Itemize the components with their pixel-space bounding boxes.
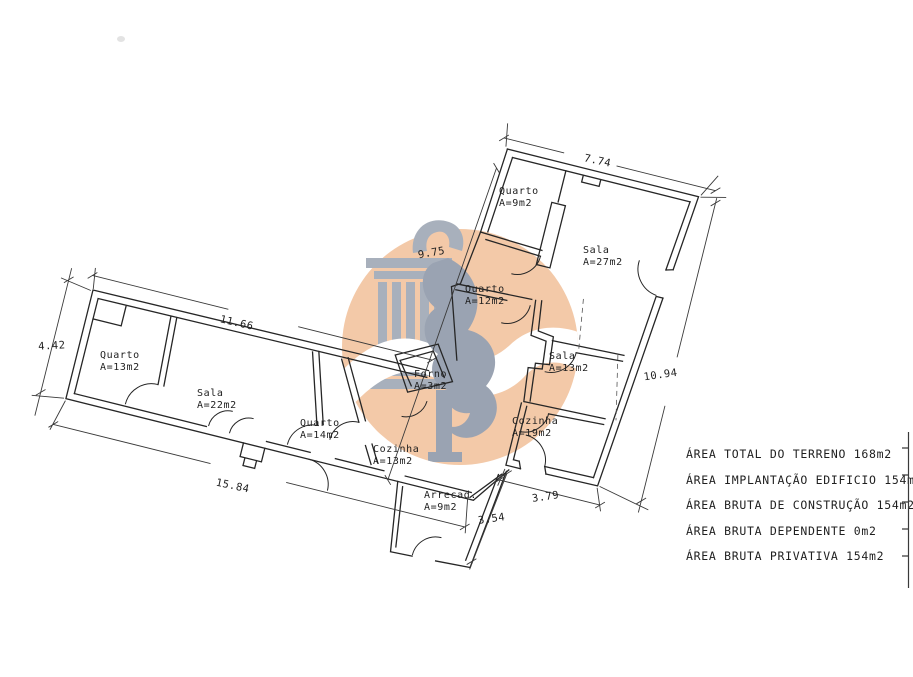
summary-line-privativa: ÁREA BRUTA PRIVATIVA 154m2 <box>686 548 884 563</box>
room-label: Sala <box>583 245 609 256</box>
summary-line-bruta: ÁREA BRUTA DE CONSTRUÇÃO 154m2 <box>686 497 913 512</box>
room-area: A=13m2 <box>100 362 140 373</box>
dim-value-left-height: 4.42 <box>38 339 66 352</box>
room-area: A=27m2 <box>583 257 623 268</box>
scan-smudge <box>117 36 125 42</box>
room-label: Arrecad. <box>424 490 477 501</box>
room-area: A=9m2 <box>499 198 532 209</box>
room-label: Forno <box>414 369 447 380</box>
room-area: A=13m2 <box>549 363 589 374</box>
dim-value-left-bottom: 15.84 <box>215 477 251 496</box>
room-area: A=12m2 <box>465 296 505 307</box>
room-label: Cozinha <box>373 444 419 455</box>
room-area: A=3m2 <box>414 381 447 392</box>
room-label: Cozinha <box>512 416 558 427</box>
room-area: A=22m2 <box>197 400 237 411</box>
floorplan-drawing: Quarto A=13m2 Sala A=22m2 Quarto A=14m2 … <box>0 0 913 677</box>
dim-value-left-top: 11.66 <box>219 313 255 332</box>
room-label: Quarto <box>465 284 505 295</box>
room-label: Quarto <box>499 186 539 197</box>
dim-value-right-bottom: 3.79 <box>531 489 560 505</box>
area-summary: ÁREA TOTAL DO TERRENO 168m2 ÁREA IMPLANT… <box>686 446 913 563</box>
dim-value-right-top: 7.74 <box>583 152 612 169</box>
room-label: Sala <box>197 388 223 399</box>
summary-line-total: ÁREA TOTAL DO TERRENO 168m2 <box>686 446 892 461</box>
room-label: Sala <box>549 351 575 362</box>
room-area: A=9m2 <box>424 502 457 513</box>
room-label: Quarto <box>300 418 340 429</box>
summary-line-dependente: ÁREA BRUTA DEPENDENTE 0m2 <box>686 523 877 538</box>
room-area: A=14m2 <box>300 430 340 441</box>
dim-value-right-side: 10.94 <box>643 367 678 384</box>
room-area: A=19m2 <box>512 428 552 439</box>
room-label: Quarto <box>100 350 140 361</box>
dim-value-annex-side: 3.54 <box>477 511 506 527</box>
floorplan-page: Quarto A=13m2 Sala A=22m2 Quarto A=14m2 … <box>0 0 913 677</box>
room-area: A=13m2 <box>373 456 413 467</box>
dim-line-10-94 <box>596 185 727 515</box>
summary-line-implant: ÁREA IMPLANTAÇÃO EDIFICIO 154m2 <box>686 472 913 487</box>
